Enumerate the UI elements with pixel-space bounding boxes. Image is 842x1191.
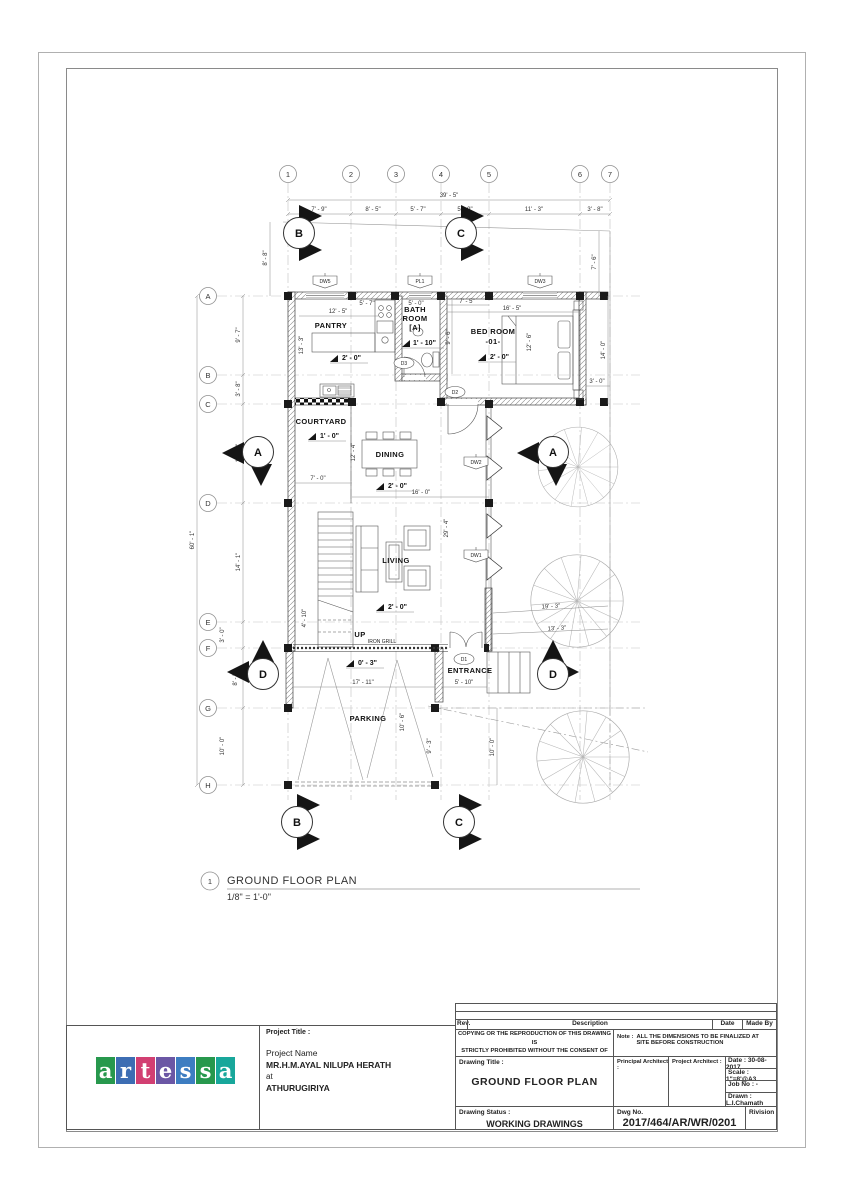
window-tag: PL1 (408, 273, 432, 288)
svg-text:2' - 0": 2' - 0" (342, 355, 361, 362)
window-tag: DW2 (464, 454, 488, 469)
dim-label: 11' - 3" (525, 207, 543, 213)
svg-text:2: 2 (349, 170, 353, 179)
dim-label: 9' - 3" (427, 738, 433, 753)
svg-text:DW5: DW5 (319, 279, 330, 285)
section-marker-c-top: C (446, 205, 485, 261)
dim-label: 8' - 8" (263, 250, 269, 265)
svg-text:D: D (549, 669, 557, 681)
tree-icon (537, 711, 629, 803)
svg-text:C: C (205, 400, 211, 409)
dim-label: 14' - 0" (601, 341, 607, 360)
project-architect-cell: Project Architect : (668, 1056, 726, 1107)
dim-label: 3' - 0" (589, 379, 604, 385)
section-marker-c-bottom: C (444, 794, 483, 850)
dim-label: 10' - 6" (400, 713, 406, 732)
dim-label: 13' - 3" (299, 336, 305, 355)
dim-label: 3' - 0" (220, 627, 226, 642)
entrance-steps (487, 652, 530, 693)
svg-text:F: F (206, 644, 211, 653)
dwg-no-cell: Dwg No. 2017/464/AR/WR/0201 (613, 1106, 746, 1130)
room-label: IRON GRILL (368, 639, 397, 645)
revision-cell: Rivision (745, 1106, 777, 1130)
section-marker-b-top: B (284, 205, 323, 261)
svg-text:4: 4 (439, 170, 443, 179)
svg-text:C: C (455, 817, 463, 829)
drawing-status-cell: Drawing Status : WORKING DRAWINGS (455, 1106, 614, 1130)
room-label: ENTRANCE (448, 666, 493, 675)
grid-bubble: 3 (388, 166, 405, 183)
door-tag: D3 (394, 358, 414, 369)
plan-scale: 1/8" = 1'-0" (227, 892, 271, 902)
floor-plan-drawing: 39' - 5" 7' - 9" 8' - 5" 5' - 7" 5' - 9"… (0, 0, 842, 1000)
room-label: -01- (486, 337, 501, 346)
walls (284, 292, 608, 789)
svg-text:DW3: DW3 (534, 279, 545, 285)
svg-text:D1: D1 (461, 657, 468, 663)
svg-text:1' - 10": 1' - 10" (413, 340, 436, 347)
svg-text:G: G (205, 704, 211, 713)
level-marker: 2' - 0" (478, 354, 516, 362)
svg-text:B: B (295, 228, 303, 240)
dim-label: 5' - 10" (455, 680, 474, 686)
dim-label: 19' - 3" (541, 603, 560, 610)
dim-label: 12' - 6" (527, 333, 533, 352)
level-marker: 1' - 0" (308, 433, 346, 441)
dimension-lines (195, 198, 612, 787)
dim-label: 3' - 8" (587, 207, 602, 213)
room-label: LIVING (382, 556, 409, 565)
kitchen-counter-band (295, 398, 350, 405)
room-label: DINING (376, 450, 405, 459)
dim-label: 12' - 5" (329, 309, 348, 315)
dim-label: 14' - 1" (236, 553, 242, 572)
svg-text:C: C (457, 228, 465, 240)
logo-letter: a (216, 1057, 235, 1084)
plan-number: 1 (208, 877, 212, 886)
project-at: at (266, 1072, 449, 1081)
project-location: ATHURUGIRIYA (266, 1083, 449, 1093)
svg-text:D3: D3 (401, 361, 408, 367)
logo-letter: t (136, 1057, 155, 1084)
grid-bubble: 4 (433, 166, 450, 183)
window-tag: DW3 (528, 273, 552, 288)
window-dw3 (523, 292, 557, 299)
svg-text:A: A (254, 447, 262, 459)
logo-letter: s (196, 1057, 215, 1084)
project-name-label: Project Name (266, 1048, 449, 1058)
dim-label: 7' - 6" (592, 254, 598, 269)
room-label: COURTYARD (296, 417, 347, 426)
svg-text:D: D (205, 499, 211, 508)
dim-label: 3' - 8" (236, 381, 242, 396)
project-title-label: Project Title : (266, 1029, 449, 1036)
level-marker: 0' - 3" (346, 660, 384, 668)
section-marker-a-right: A (517, 437, 569, 487)
svg-text:6: 6 (578, 170, 582, 179)
drawn-cell: Drawn : L.I.Chamath (725, 1092, 777, 1107)
grid-bubble: F (200, 640, 217, 657)
staircase (318, 512, 353, 647)
door-d1 (448, 632, 484, 652)
window-pl1 (409, 292, 431, 299)
dim-label: 10' - 0" (220, 737, 226, 756)
svg-text:1: 1 (286, 170, 290, 179)
dim-label: 4' - 10" (302, 609, 308, 628)
dim-label: 7' - 5" (459, 299, 474, 305)
dim-label: 12' - 4" (351, 443, 357, 462)
grid-bubble: H (200, 777, 217, 794)
svg-text:0' - 3": 0' - 3" (358, 660, 377, 667)
door-tag: D2 (445, 387, 465, 398)
svg-text:DW2: DW2 (470, 460, 481, 466)
svg-text:2' - 0": 2' - 0" (490, 354, 509, 361)
artessa-logo: a r t e s s a (96, 1057, 235, 1084)
gate-line (295, 782, 431, 786)
svg-text:D2: D2 (452, 390, 459, 396)
grid-bubble: 7 (602, 166, 619, 183)
dim-label: 7' - 0" (310, 476, 325, 482)
level-marker: 2' - 0" (330, 355, 368, 363)
section-marker-b-bottom: B (282, 794, 321, 850)
grid-bubble: C (200, 396, 217, 413)
svg-text:5: 5 (487, 170, 491, 179)
dim-label: 17' - 11" (352, 680, 374, 686)
grid-bubble: D (200, 495, 217, 512)
svg-text:A: A (205, 292, 210, 301)
dim-label: 5' - 7" (410, 207, 425, 213)
dim-label: 39' - 5" (440, 193, 459, 199)
tree-icon (531, 555, 623, 647)
dim-label: 13' - 3" (547, 625, 566, 632)
principal-architect-cell: Principal Architect : (613, 1056, 669, 1107)
svg-text:E: E (205, 618, 210, 627)
dim-label: 8' - 5" (365, 207, 380, 213)
room-label: PANTRY (315, 321, 347, 330)
dim-label: 16' - 5" (503, 306, 522, 312)
dim-label: 29' - 4" (444, 519, 450, 538)
window-tag: DW1 (464, 547, 488, 562)
project-cell: Project Title : Project Name MR.H.M.AYAL… (259, 1025, 456, 1130)
room-label: ROOM (403, 314, 428, 323)
note-cell: Note : ALL THE DIMENSIONS TO BE FINALIZE… (613, 1029, 777, 1057)
grid-bubble: A (200, 288, 217, 305)
level-marker: 2' - 0" (376, 604, 414, 612)
svg-text:PL1: PL1 (416, 279, 425, 285)
plan-title: GROUND FLOOR PLAN (227, 875, 357, 887)
logo-letter: a (96, 1057, 115, 1084)
boundary-lines (283, 222, 648, 790)
level-marker: 2' - 0" (376, 483, 414, 491)
logo-letter: r (116, 1057, 135, 1084)
grid-bubble: 6 (572, 166, 589, 183)
room-label: [A] (409, 323, 421, 332)
dim-label: 10' - 0" (490, 738, 496, 757)
logo-letter: e (156, 1057, 175, 1084)
dim-label: 60' - 1" (190, 531, 196, 550)
dim-label: 9' - 6" (446, 329, 452, 344)
dim-label: 16' - 0" (412, 490, 431, 496)
client-name: MR.H.M.AYAL NILUPA HERATH (266, 1060, 449, 1070)
grid-bubble: 2 (343, 166, 360, 183)
svg-text:2' - 0": 2' - 0" (388, 483, 407, 490)
svg-text:B: B (293, 817, 301, 829)
door-d2 (447, 399, 478, 434)
svg-text:H: H (205, 781, 210, 790)
svg-text:7: 7 (608, 170, 612, 179)
kitchen-sink (320, 384, 354, 397)
door-tag: D1 (454, 654, 474, 665)
room-label: UP (354, 630, 365, 639)
grid-bubble: G (200, 700, 217, 717)
dim-label: 5' - 7" (359, 301, 374, 307)
dim-label: 9' - 7" (236, 327, 242, 342)
drawing-title-cell: Drawing Title : GROUND FLOOR PLAN (455, 1056, 614, 1107)
section-marker-a-left: A (222, 437, 274, 487)
svg-text:A: A (549, 447, 557, 459)
room-label: PARKING (350, 714, 387, 723)
window-tag: DW5 (313, 273, 337, 288)
drawing-sheet: 39' - 5" 7' - 9" 8' - 5" 5' - 7" 5' - 9"… (0, 0, 842, 1191)
svg-text:2' - 0": 2' - 0" (388, 604, 407, 611)
section-marker-d-right: D (538, 640, 580, 690)
copyright-cell: COPYING OR THE REPRODUCTION OF THIS DRAW… (455, 1029, 614, 1057)
svg-text:B: B (205, 371, 210, 380)
svg-text:DW1: DW1 (470, 553, 481, 559)
room-label: BATH (404, 305, 426, 314)
svg-text:3: 3 (394, 170, 398, 179)
plan-title-block: 1 GROUND FLOOR PLAN 1/8" = 1'-0" (201, 872, 640, 902)
grid-bubble: 1 (280, 166, 297, 183)
grid-bubble: B (200, 367, 217, 384)
grid-bubble: 5 (481, 166, 498, 183)
window-dw5 (306, 292, 344, 299)
grid-bubble: E (200, 614, 217, 631)
level-marker: 1' - 10" (402, 340, 444, 348)
svg-text:1' - 0": 1' - 0" (320, 433, 339, 440)
bed (502, 301, 583, 399)
room-label: BED ROOM (471, 327, 515, 336)
logo-letter: s (176, 1057, 195, 1084)
svg-text:D: D (259, 669, 267, 681)
